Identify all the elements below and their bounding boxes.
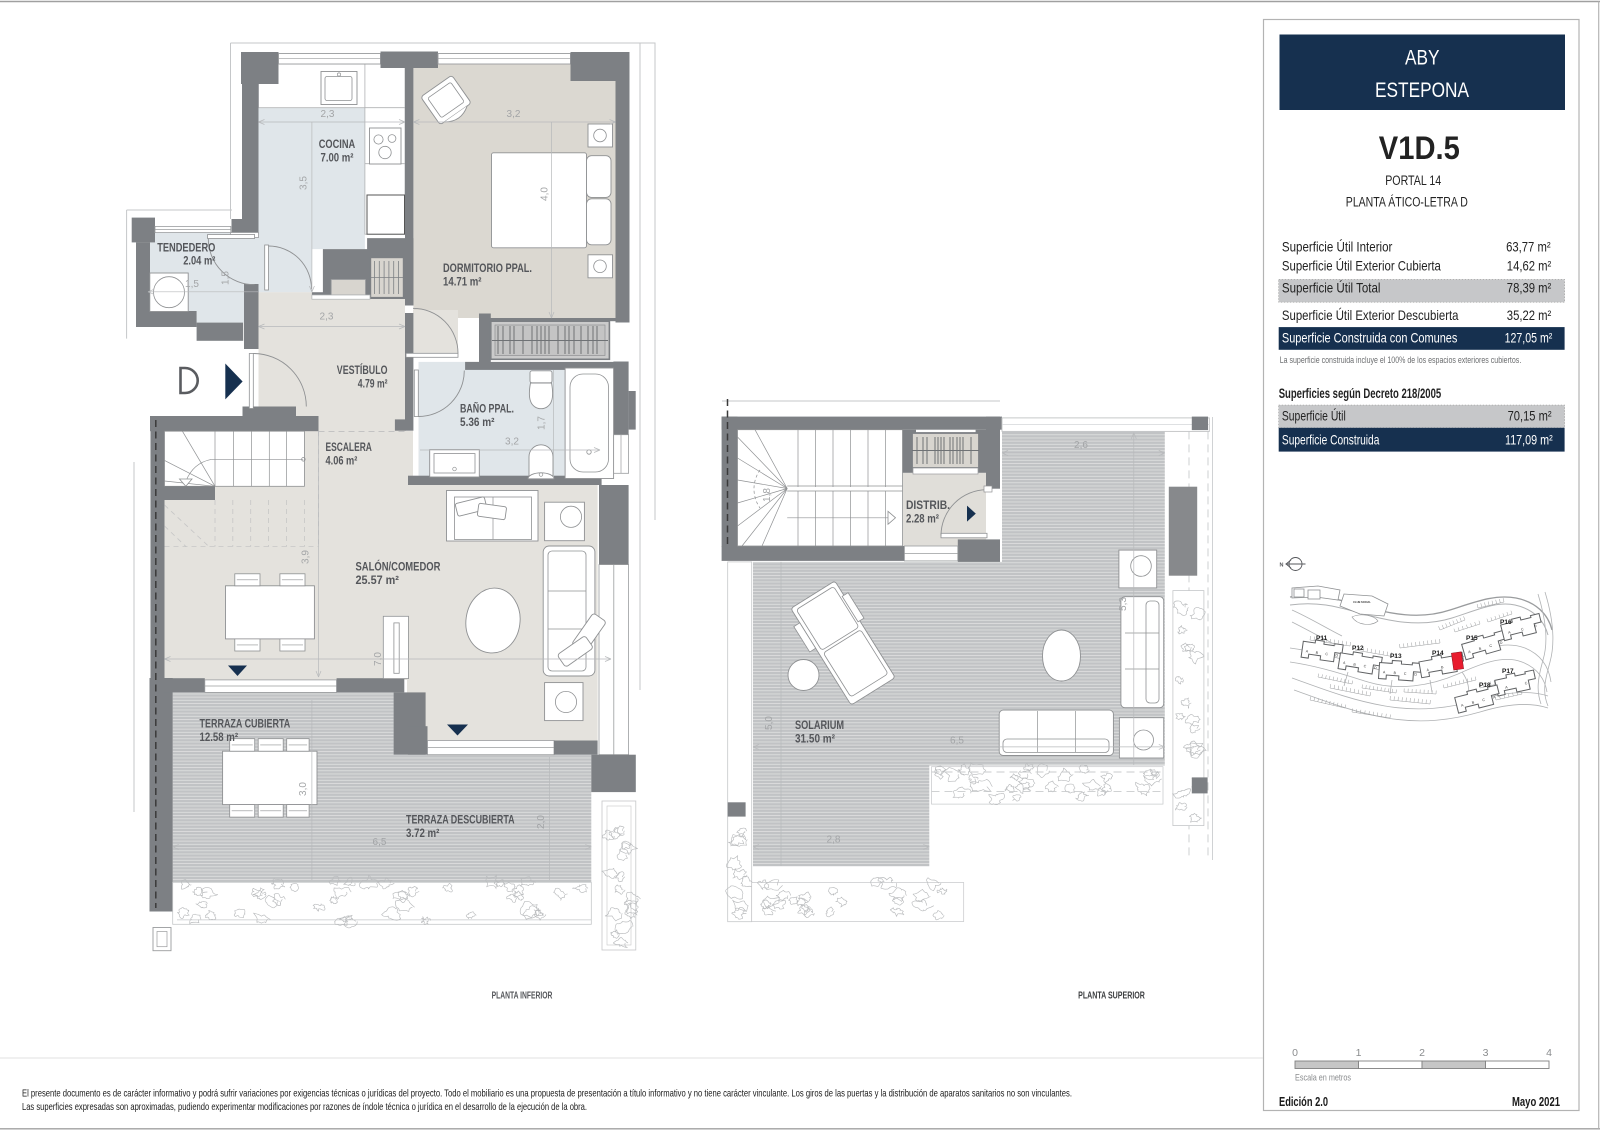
svg-text:La superficie construida inclu: La superficie construida incluye el 100%… [1280, 355, 1522, 366]
svg-text:TERRAZA CUBIERTA: TERRAZA CUBIERTA [200, 717, 291, 731]
svg-text:BAÑO PPAL.: BAÑO PPAL. [460, 401, 514, 416]
svg-text:PLANTA INFERIOR: PLANTA INFERIOR [492, 990, 553, 1002]
svg-text:4,0: 4,0 [540, 187, 551, 201]
svg-text:ESCALERA: ESCALERA [326, 440, 373, 454]
svg-text:12.58 m²: 12.58 m² [200, 730, 239, 744]
svg-text:Edición 2.0: Edición 2.0 [1279, 1094, 1328, 1109]
svg-text:127,05 m²: 127,05 m² [1505, 331, 1553, 346]
svg-text:2,6: 2,6 [1074, 440, 1088, 451]
svg-text:3: 3 [1483, 1047, 1489, 1059]
svg-text:117,09 m²: 117,09 m² [1505, 432, 1553, 447]
svg-text:Superficie Construida: Superficie Construida [1282, 432, 1380, 447]
svg-text:5,3: 5,3 [1118, 597, 1129, 611]
svg-text:N: N [1280, 563, 1284, 569]
svg-text:31.50 m²: 31.50 m² [795, 732, 835, 746]
svg-text:7,0: 7,0 [373, 652, 384, 666]
svg-text:3,2: 3,2 [507, 109, 521, 120]
svg-text:Superficie Útil Exterior Descu: Superficie Útil Exterior Descubierta [1282, 307, 1459, 323]
svg-text:0: 0 [1292, 1047, 1298, 1059]
svg-text:2,8: 2,8 [827, 835, 841, 846]
svg-text:14,62 m²: 14,62 m² [1507, 258, 1552, 273]
svg-text:70,15 m²: 70,15 m² [1508, 409, 1552, 424]
svg-text:TENDEDERO: TENDEDERO [157, 241, 215, 255]
svg-text:Escala en metros: Escala en metros [1295, 1073, 1351, 1084]
svg-text:PORTAL 14: PORTAL 14 [1385, 173, 1441, 188]
svg-text:2,3: 2,3 [320, 312, 334, 323]
svg-text:3,5: 3,5 [299, 176, 310, 190]
svg-text:2.28 m²: 2.28 m² [906, 512, 939, 526]
svg-text:SALÓN/COMEDOR: SALÓN/COMEDOR [356, 559, 441, 574]
svg-text:P16: P16 [1500, 619, 1512, 626]
svg-text:P15: P15 [1466, 635, 1478, 642]
svg-text:1: 1 [1356, 1047, 1362, 1059]
svg-text:Superficie Construida con Comu: Superficie Construida con Comunes [1282, 331, 1458, 346]
svg-text:TERRAZA DESCUBIERTA: TERRAZA DESCUBIERTA [406, 813, 515, 827]
svg-text:2,3: 2,3 [321, 109, 335, 120]
svg-text:4.06 m²: 4.06 m² [326, 454, 358, 468]
svg-text:P14: P14 [1432, 650, 1444, 657]
svg-text:ABY: ABY [1405, 46, 1440, 70]
svg-text:Superficie Útil: Superficie Útil [1282, 408, 1346, 424]
svg-text:5.36 m²: 5.36 m² [460, 415, 495, 429]
svg-text:3,0: 3,0 [298, 782, 309, 796]
svg-text:14.71 m²: 14.71 m² [443, 275, 482, 289]
svg-text:PLANTA SUPERIOR: PLANTA SUPERIOR [1078, 990, 1145, 1002]
svg-text:V1D.5: V1D.5 [1379, 130, 1460, 166]
svg-text:3,2: 3,2 [505, 437, 519, 448]
svg-text:2: 2 [1419, 1047, 1425, 1059]
svg-text:5,0: 5,0 [764, 716, 775, 730]
svg-text:P17: P17 [1502, 668, 1514, 675]
svg-text:Superficies según Decreto 218/: Superficies según Decreto 218/2005 [1279, 386, 1442, 401]
svg-text:VESTÍBULO: VESTÍBULO [337, 362, 388, 377]
svg-text:63,77 m²: 63,77 m² [1506, 240, 1551, 255]
svg-text:1,7: 1,7 [537, 416, 548, 430]
svg-text:El presente documento es de ca: El presente documento es de carácter inf… [22, 1089, 1072, 1100]
svg-text:78,39 m²: 78,39 m² [1507, 281, 1552, 296]
svg-text:Mayo 2021: Mayo 2021 [1512, 1094, 1560, 1109]
svg-text:25.57 m²: 25.57 m² [356, 573, 399, 587]
svg-text:SOLARIUM: SOLARIUM [795, 718, 844, 732]
svg-text:Superficie Útil Interior: Superficie Útil Interior [1282, 239, 1393, 255]
svg-text:DISTRIB.: DISTRIB. [906, 498, 950, 512]
svg-text:Las superficies expresadas son: Las superficies expresadas son aproximad… [22, 1102, 587, 1113]
svg-text:P12: P12 [1352, 645, 1364, 652]
svg-text:1,8: 1,8 [762, 488, 773, 502]
svg-text:COCINA: COCINA [319, 137, 356, 151]
svg-text:4: 4 [1546, 1047, 1552, 1059]
svg-text:P18: P18 [1479, 682, 1491, 689]
svg-text:P13: P13 [1390, 653, 1402, 660]
svg-text:35,22 m²: 35,22 m² [1507, 308, 1552, 323]
svg-text:Superficie Útil Total: Superficie Útil Total [1282, 280, 1381, 296]
svg-text:2.04 m²: 2.04 m² [183, 254, 215, 268]
svg-text:4.79 m²: 4.79 m² [358, 377, 388, 391]
svg-text:P11: P11 [1316, 635, 1328, 642]
svg-text:6,5: 6,5 [950, 736, 964, 747]
svg-text:1,5: 1,5 [185, 279, 199, 290]
svg-text:Superficie Útil Exterior Cubie: Superficie Útil Exterior Cubierta [1282, 257, 1441, 273]
svg-text:6,5: 6,5 [373, 837, 387, 848]
svg-text:PLANTA ÁTICO-LETRA D: PLANTA ÁTICO-LETRA D [1346, 195, 1468, 210]
svg-text:DORMITORIO PPAL.: DORMITORIO PPAL. [443, 261, 532, 275]
svg-text:3,9: 3,9 [301, 550, 312, 564]
svg-text:2,0: 2,0 [536, 815, 547, 829]
svg-text:ESTEPONA: ESTEPONA [1375, 78, 1470, 102]
svg-text:7.00 m²: 7.00 m² [321, 151, 354, 165]
svg-text:1,5: 1,5 [221, 271, 232, 285]
svg-text:CLUB SOCIAL: CLUB SOCIAL [1353, 600, 1371, 604]
svg-text:3.72 m²: 3.72 m² [406, 826, 439, 840]
